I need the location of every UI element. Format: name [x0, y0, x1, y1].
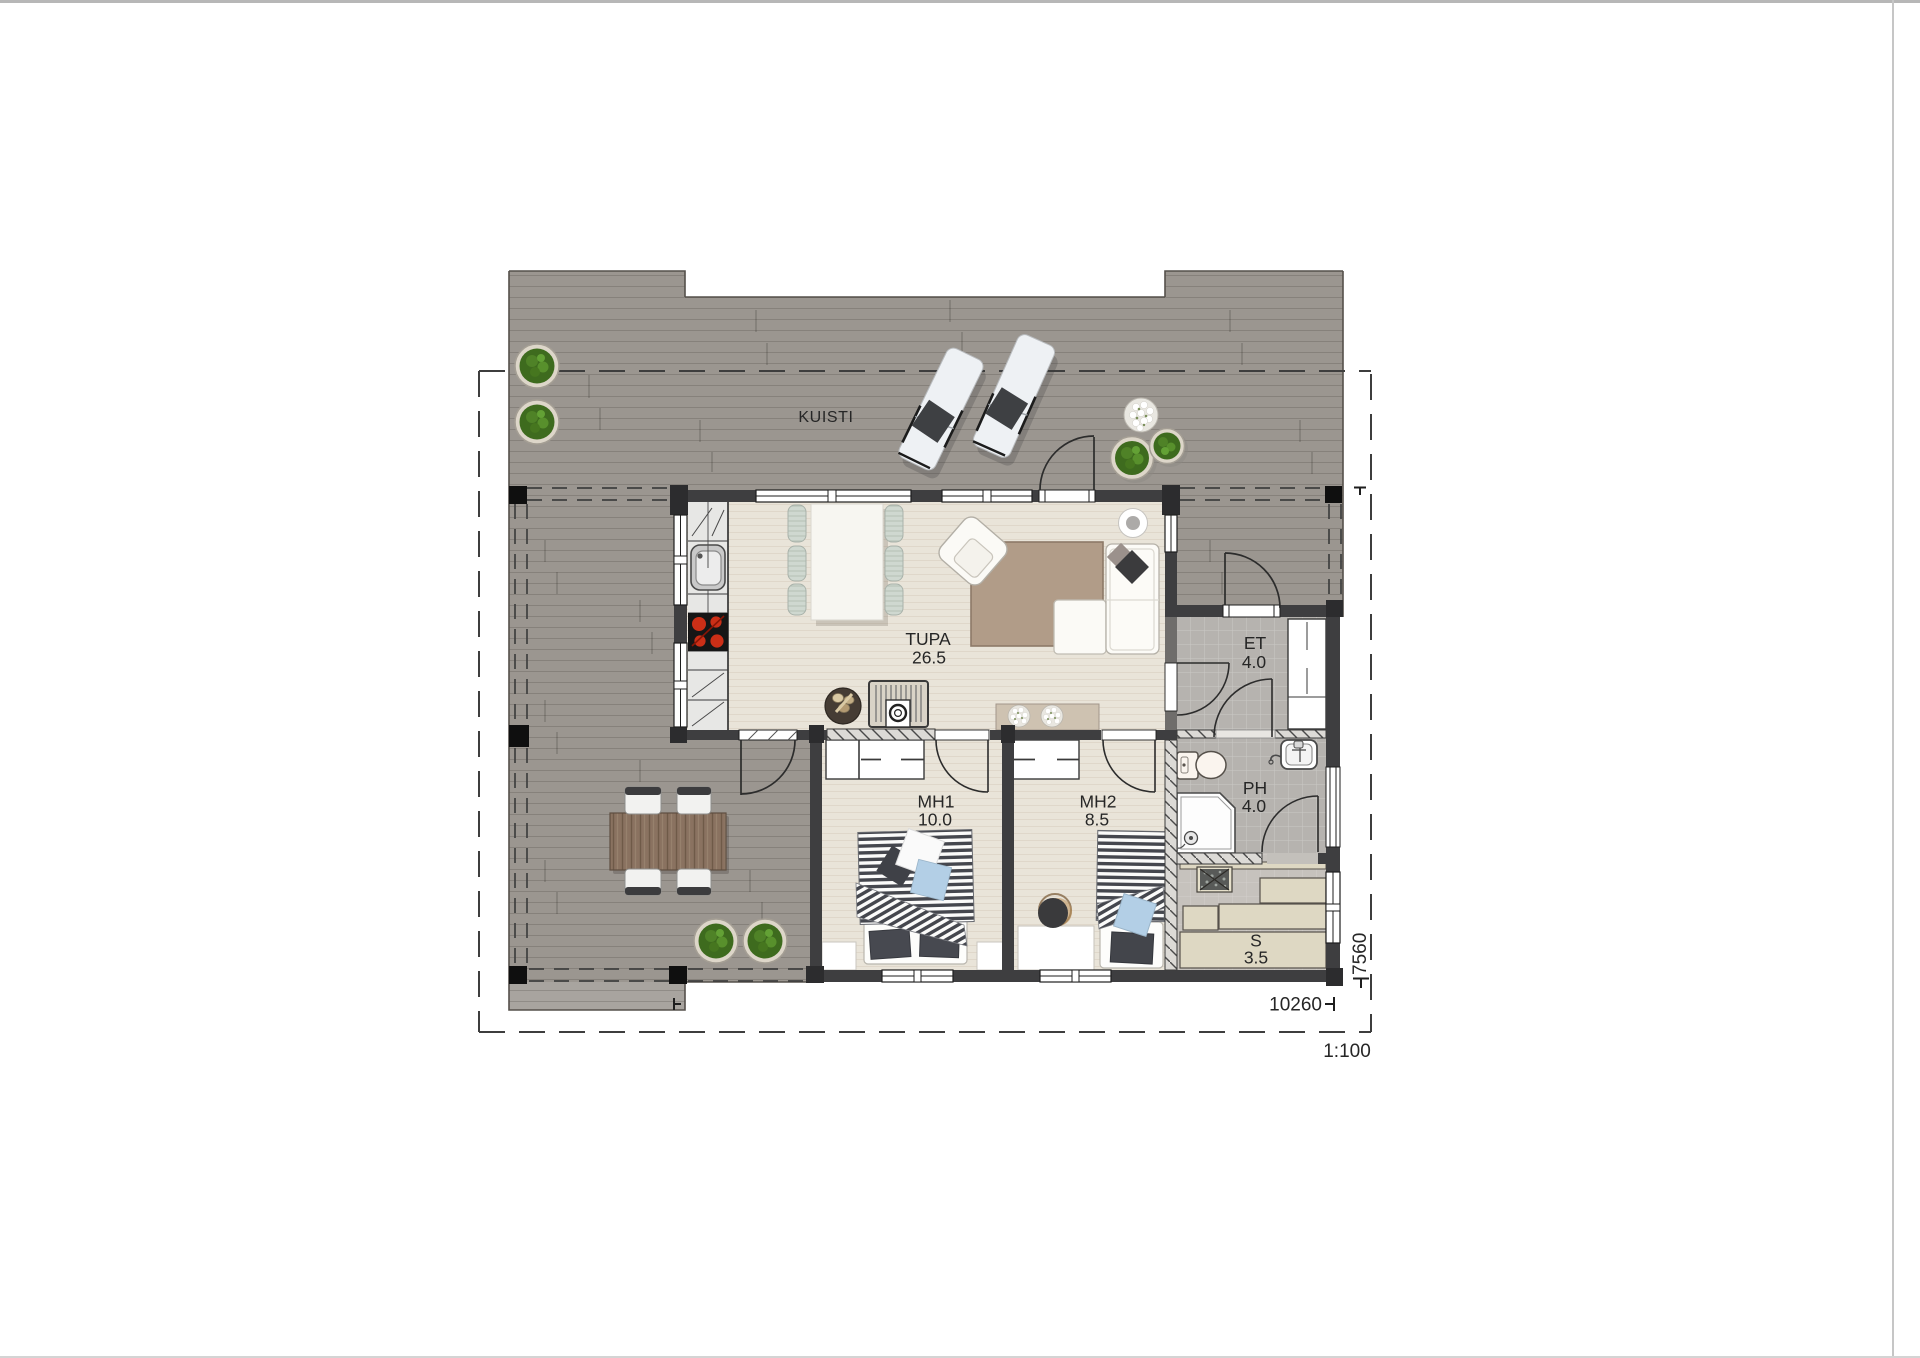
svg-text:MH2: MH2	[1080, 792, 1117, 812]
svg-text:10.0: 10.0	[918, 810, 952, 830]
svg-text:3.5: 3.5	[1244, 948, 1268, 968]
svg-text:4.0: 4.0	[1242, 796, 1267, 816]
svg-text:26.5: 26.5	[912, 648, 946, 668]
svg-text:10260: 10260	[1269, 995, 1322, 1016]
svg-text:1:100: 1:100	[1323, 1041, 1371, 1062]
svg-text:ET: ET	[1244, 633, 1267, 653]
svg-text:KUISTI: KUISTI	[798, 409, 853, 426]
svg-text:PH: PH	[1243, 778, 1267, 798]
svg-text:7560: 7560	[1350, 933, 1371, 975]
svg-text:8.5: 8.5	[1085, 810, 1109, 830]
svg-text:MH1: MH1	[918, 792, 955, 812]
svg-text:TUPA: TUPA	[905, 629, 951, 649]
svg-text:4.0: 4.0	[1242, 652, 1267, 672]
